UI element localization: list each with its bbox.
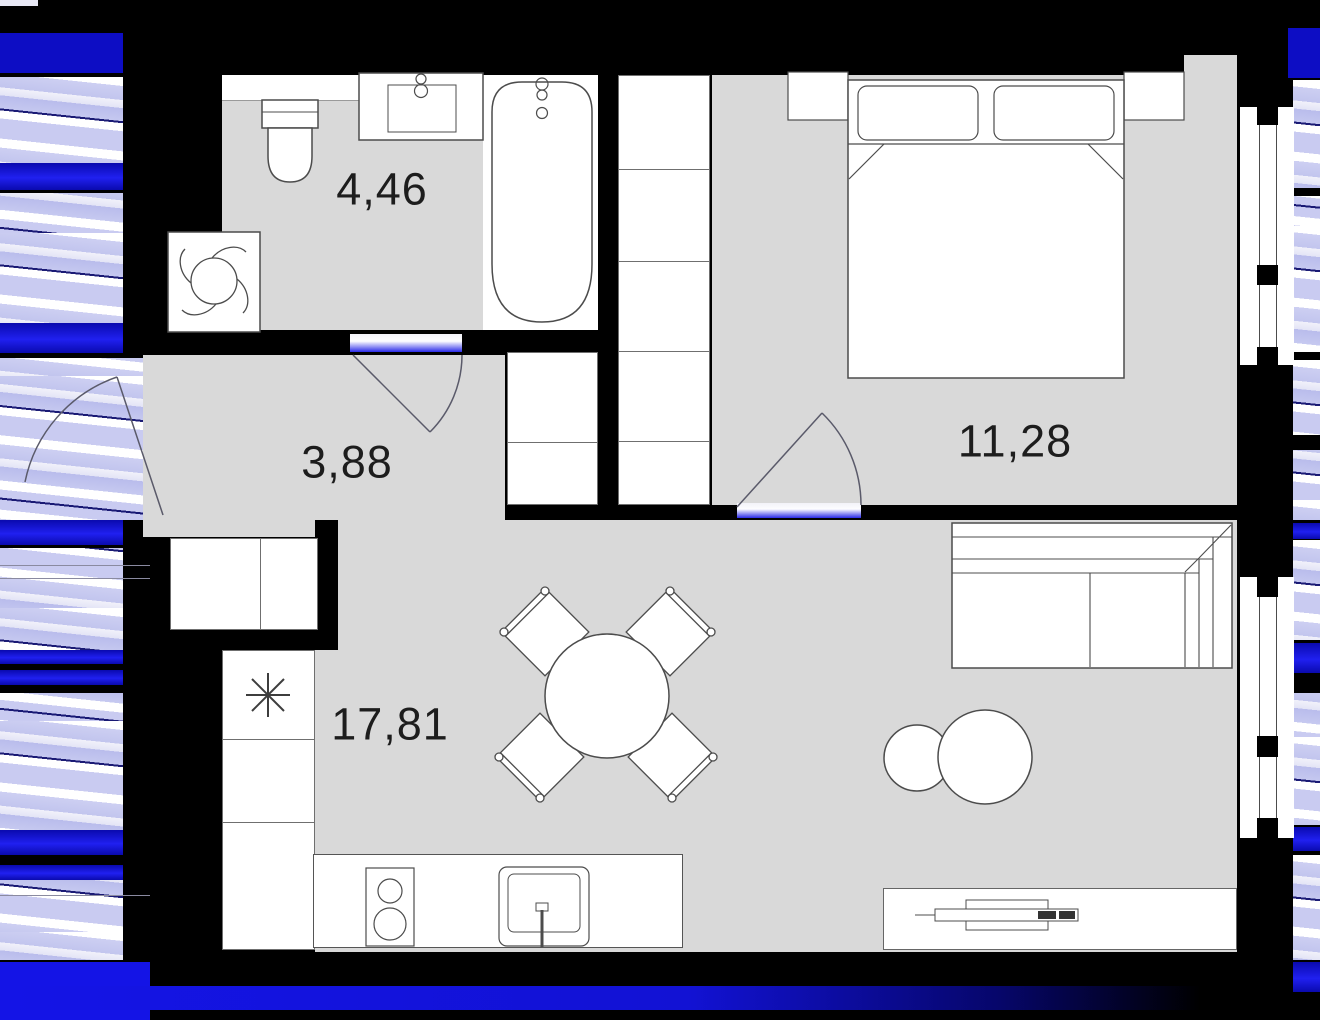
- glitch-thin-line: [0, 578, 150, 579]
- bathroom-area-label: 4,46: [336, 167, 428, 212]
- bedroom-window-mullion: [1257, 265, 1278, 285]
- glitch-stripe-band: [1293, 855, 1320, 960]
- kitchen-unit-cell: [222, 739, 315, 823]
- floor-plan-canvas: 4,46 3,88 11,28 17,81: [0, 0, 1320, 1020]
- entry-cabinet-cell: [260, 538, 318, 630]
- living-window-mullion: [1257, 736, 1278, 757]
- living-window-mullion: [1257, 818, 1278, 838]
- glitch-stripe-band: [0, 193, 123, 323]
- glitch-blue-block-top: [0, 33, 123, 73]
- wall-segment: [315, 520, 338, 650]
- glitch-stripe-band: [1293, 693, 1320, 825]
- glitch-left-column: [0, 0, 150, 1020]
- wardrobe-cell: [618, 351, 710, 442]
- glitch-thin-line: [0, 565, 150, 566]
- wardrobe-cell: [618, 75, 710, 170]
- glitch-blue-streak: [0, 670, 123, 685]
- glitch-stripe-band: [1293, 80, 1320, 188]
- glitch-blue-streak: [0, 830, 123, 855]
- glitch-blue-streak: [0, 650, 123, 664]
- bedroom-door-opening: [737, 503, 861, 518]
- living-window-mullion: [1257, 577, 1278, 597]
- living-window-frame-line: [1259, 577, 1260, 838]
- glitch-stripe-band: [1293, 196, 1320, 352]
- bedroom-floor-niche: [1184, 55, 1237, 80]
- kitchen-counter: [313, 854, 683, 948]
- glitch-stripe-band: [0, 358, 145, 520]
- glitch-blue-block-top-right: [1288, 28, 1320, 78]
- bathtub-surround: [483, 75, 598, 330]
- hallway-closet-cell: [507, 442, 598, 505]
- living-room-window: [1240, 577, 1294, 838]
- glitch-thin-line: [0, 895, 150, 896]
- bedroom-window-mullion: [1257, 107, 1278, 125]
- bathroom-counter-strip: [222, 75, 359, 101]
- glitch-stripe-band: [0, 693, 123, 830]
- glitch-blue-streak: [0, 163, 123, 190]
- glitch-white-sliver: [0, 0, 38, 6]
- bedroom-area-label: 11,28: [958, 419, 1072, 464]
- glitch-stripe-band: [0, 548, 123, 650]
- wardrobe-cell: [618, 441, 710, 505]
- kitchen-unit-fridge: [222, 650, 315, 740]
- glitch-stripe-band: [0, 77, 123, 163]
- tv-console: [883, 888, 1237, 950]
- living-area-label: 17,81: [331, 702, 449, 747]
- glitch-stripe-band: [1293, 360, 1320, 435]
- bathroom-door-opening: [350, 334, 462, 352]
- bedroom-window: [1240, 107, 1294, 365]
- bedroom-window-frame-line: [1259, 107, 1260, 365]
- living-window-frame-line: [1276, 577, 1277, 838]
- bedroom-window-frame-line: [1276, 107, 1277, 365]
- hallway-area-label: 3,88: [301, 440, 393, 485]
- entry-cabinet-cell: [170, 538, 261, 630]
- glitch-blue-streak: [1293, 827, 1320, 851]
- glitch-blue-streak: [0, 323, 123, 353]
- kitchen-unit-cell: [222, 822, 315, 950]
- wardrobe-cell: [618, 169, 710, 262]
- glitch-stripe-band: [1293, 450, 1320, 520]
- glitch-stripe-band: [1293, 540, 1320, 640]
- glitch-blue-streak: [1293, 643, 1320, 673]
- glitch-blue-streak: [0, 520, 123, 545]
- bedroom-window-mullion: [1257, 347, 1278, 365]
- glitch-blue-streak: [1293, 523, 1320, 539]
- hallway-closet-cell: [507, 352, 598, 443]
- glitch-blue-streak: [1293, 962, 1320, 992]
- glitch-stripe-band: [0, 880, 123, 960]
- glitch-bottom-blue-band: [0, 986, 1250, 1010]
- wardrobe-cell: [618, 261, 710, 352]
- glitch-blue-streak: [0, 865, 123, 880]
